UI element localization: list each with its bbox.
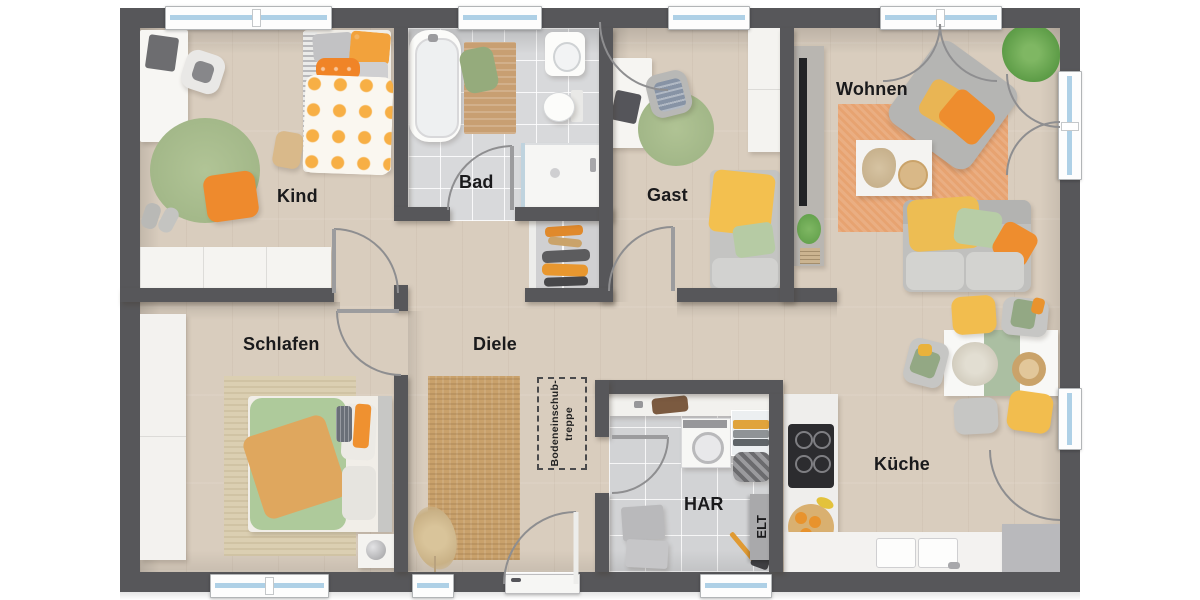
window-wohnen	[880, 6, 1002, 30]
kitchen-faucet	[948, 562, 960, 569]
alcove-shelf-edge	[529, 221, 536, 288]
storage-box	[625, 539, 668, 569]
window-bad	[458, 6, 542, 30]
sideboard-seam	[203, 247, 204, 288]
attic-hatch-annotation: Bodeneinschub- treppe	[537, 377, 587, 470]
wardrobe-schlafen	[140, 314, 186, 560]
laundry-dark	[733, 439, 769, 446]
window-kind	[165, 6, 332, 30]
burner	[813, 455, 831, 473]
wall	[394, 285, 408, 311]
wardrobe-seam	[140, 436, 186, 437]
pillow-orange-small	[352, 403, 371, 448]
sink-basin-left	[876, 538, 916, 568]
floor-pillow-kind	[202, 170, 260, 224]
wall-outer-bottom-right	[578, 572, 1080, 592]
bathtub-basin	[415, 38, 459, 138]
wall	[394, 375, 408, 572]
window-har	[700, 574, 772, 598]
pastry	[1019, 359, 1039, 379]
fruit	[795, 512, 807, 524]
washer-panel	[683, 420, 727, 428]
tv	[799, 58, 807, 206]
flower-bouquet	[952, 342, 998, 386]
wall	[599, 28, 613, 302]
shower	[521, 143, 603, 213]
daybed-armrest	[712, 258, 778, 288]
room-label-wohnen: Wohnen	[836, 79, 908, 100]
wall	[595, 380, 783, 394]
sideboard-seam	[266, 247, 267, 288]
pillow-white	[342, 466, 376, 520]
tray	[898, 160, 928, 190]
glass-door-kueche	[1058, 388, 1082, 450]
wall	[780, 28, 794, 302]
window-gast	[668, 6, 750, 30]
room-label-kueche: Küche	[874, 454, 930, 475]
washer-door	[692, 432, 724, 464]
sideboard-kind	[140, 247, 331, 288]
toilet	[543, 92, 575, 122]
laundry-basket	[733, 452, 771, 482]
dining-chair-gray	[953, 397, 999, 435]
shoes	[542, 263, 588, 277]
appliance-gray	[1002, 524, 1060, 572]
burner	[813, 431, 831, 449]
wall	[595, 493, 609, 572]
napkin-yellow	[918, 344, 932, 356]
wall	[394, 28, 408, 207]
sink-basin	[553, 42, 581, 72]
palm-plant	[1002, 24, 1060, 82]
pillow-green	[732, 221, 776, 258]
dining-chair-yellow	[1005, 389, 1054, 435]
wall	[595, 380, 609, 437]
wall	[525, 288, 613, 302]
books-stack	[800, 248, 820, 264]
floor-plan-image: Bodeneinschub- treppe ELT	[0, 0, 1200, 600]
sofa-cushion	[966, 252, 1024, 290]
burner	[795, 455, 813, 473]
dining-chair-yellow	[951, 295, 998, 336]
laundry-orange	[733, 420, 769, 429]
window-schlafen	[210, 574, 329, 598]
burner	[795, 431, 813, 449]
wardrobe-seam	[748, 89, 780, 90]
door-handle	[511, 578, 521, 582]
laundry-gray	[733, 430, 769, 438]
wall	[394, 207, 450, 221]
wardrobe-gast	[748, 28, 780, 152]
wall	[120, 288, 334, 302]
attic-hatch-label-line2: treppe	[563, 407, 575, 441]
headboard	[378, 396, 392, 532]
attic-hatch-label-line1: Bodeneinschub-	[549, 380, 561, 466]
duvet-polkadot	[302, 74, 393, 175]
keys	[634, 401, 643, 408]
room-label-schlafen: Schlafen	[243, 334, 320, 355]
window-diele	[412, 574, 454, 598]
entrance-door	[505, 574, 580, 594]
shoes	[544, 276, 588, 287]
storage-box	[621, 505, 665, 542]
elt-label: ELT	[754, 515, 769, 539]
room-label-har: HAR	[684, 494, 724, 515]
room-label-kind: Kind	[277, 186, 318, 207]
sofa-cushion	[906, 252, 964, 290]
wall	[769, 394, 783, 572]
fruit	[809, 516, 821, 528]
laptop-kind	[145, 34, 179, 72]
shower-drain	[550, 168, 560, 178]
shower-fixture	[590, 158, 596, 172]
plant-small	[797, 214, 821, 244]
room-label-diele: Diele	[473, 334, 517, 355]
room-label-bad: Bad	[459, 172, 494, 193]
pillow-striped-dark	[336, 406, 352, 442]
bath-faucet	[428, 34, 438, 42]
wall	[677, 288, 837, 302]
lamp	[366, 540, 386, 560]
french-door-wohnen	[1058, 71, 1082, 180]
shower-glass	[521, 143, 525, 209]
room-label-gast: Gast	[647, 185, 688, 206]
shoes	[542, 249, 591, 263]
